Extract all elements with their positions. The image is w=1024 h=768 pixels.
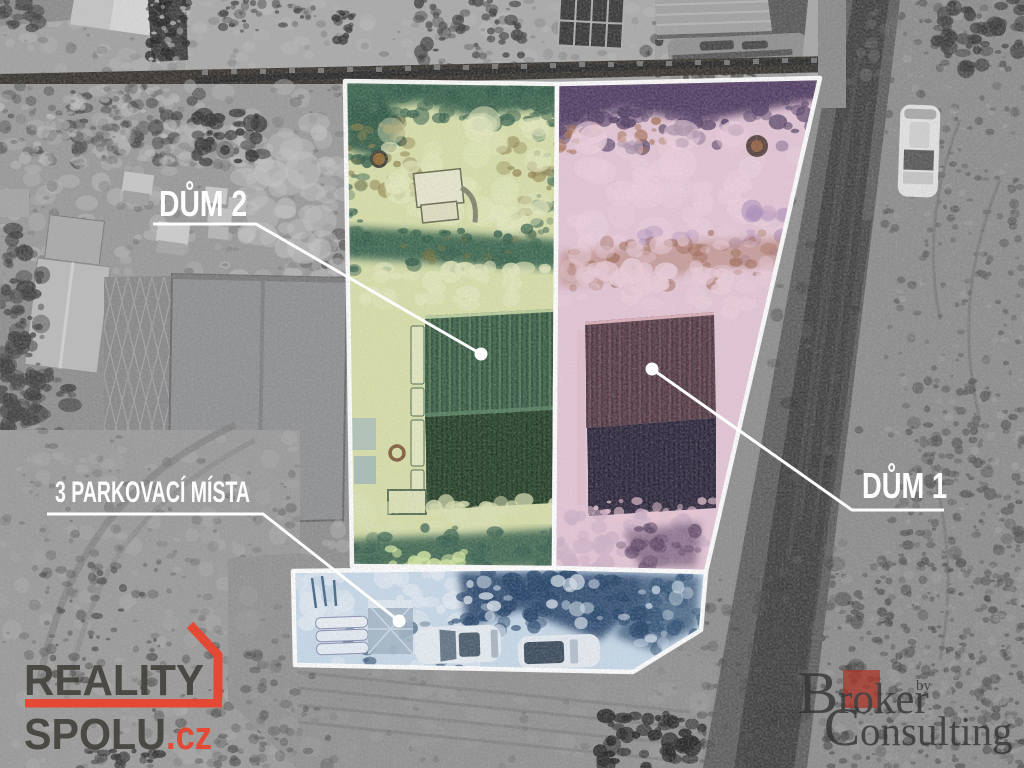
svg-text:by: by: [916, 678, 932, 694]
svg-text:DŮM 2: DŮM 2: [159, 181, 247, 224]
svg-text:3 PARKOVACÍ MÍSTA: 3 PARKOVACÍ MÍSTA: [55, 474, 250, 509]
svg-text:DŮM 1: DŮM 1: [862, 463, 947, 506]
svg-text:SPOLU: SPOLU: [24, 710, 166, 759]
svg-text:REALITY: REALITY: [24, 656, 204, 705]
svg-text:.cz: .cz: [166, 714, 212, 758]
